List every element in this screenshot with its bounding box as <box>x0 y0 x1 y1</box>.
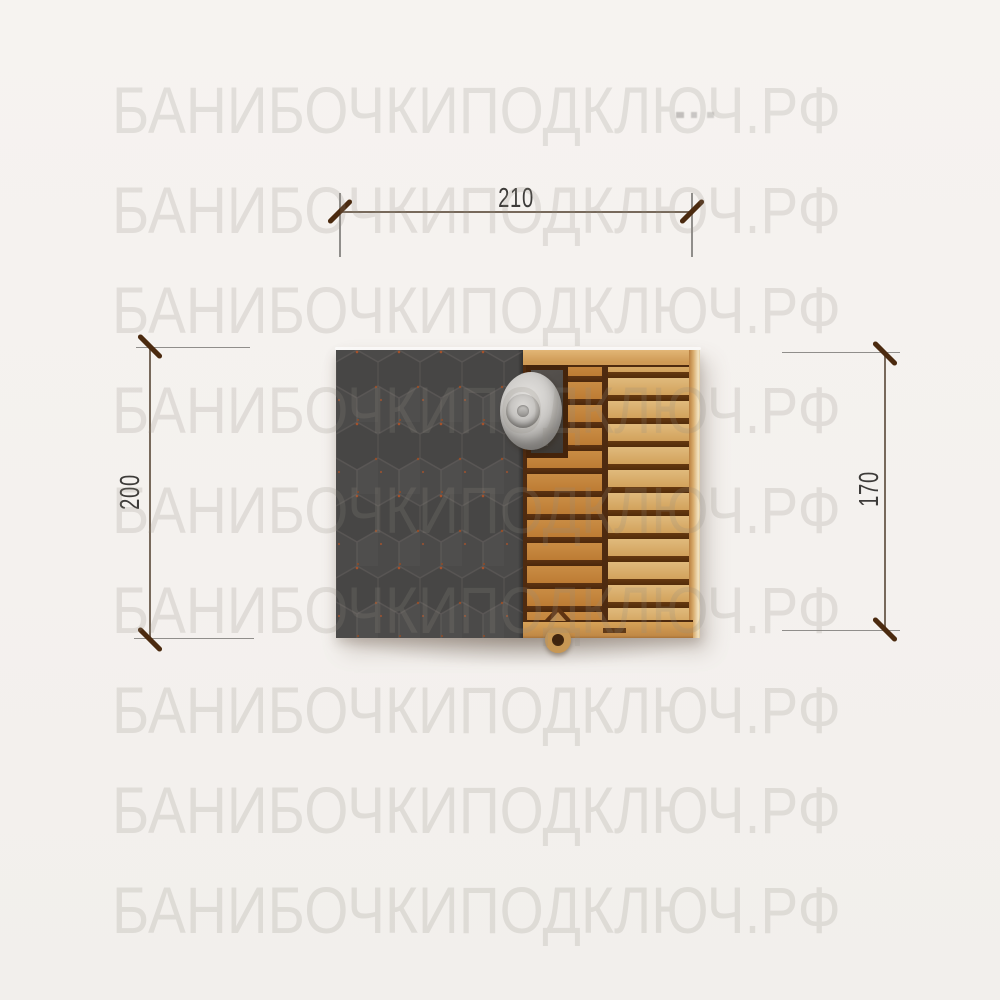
extension-line <box>691 193 693 257</box>
extension-line <box>339 193 341 257</box>
dimension-line <box>884 352 886 632</box>
sauna-building-topview <box>336 350 700 638</box>
frame-notch <box>603 628 626 633</box>
deck-frame-right <box>689 350 700 638</box>
deck-planks-outer <box>608 367 689 620</box>
watermark-row: БАНИБОЧКИПОДКЛЮЧ.РФ <box>112 870 841 950</box>
dimension-label-depth-left: 200 <box>115 466 145 518</box>
watermark-row: БАНИБОЧКИПОДКЛЮЧ.РФ <box>112 670 841 750</box>
shingle-roof <box>336 350 523 638</box>
watermark-row: БАНИБОЧКИПОДКЛЮЧ.РФ <box>112 270 841 350</box>
roof-vent-triangle-inner <box>550 612 566 621</box>
dimension-line <box>149 345 151 642</box>
chimney-pipe <box>506 394 540 428</box>
watermark-row: БАНИБОЧКИПОДКЛЮЧ.РФ <box>112 170 841 250</box>
faint-artifact <box>676 112 724 118</box>
dimension-label-depth-right: 170 <box>854 463 884 515</box>
door-ring-handle <box>545 627 571 653</box>
watermark-row: БАНИБОЧКИПОДКЛЮЧ.РФ <box>112 770 841 850</box>
hex-shingle-pattern <box>336 350 523 638</box>
watermark-row: БАНИБОЧКИПОДКЛЮЧ.РФ <box>112 70 841 150</box>
dimension-label-width: 210 <box>490 183 542 213</box>
sauna-plan-drawing: БАНИБОЧКИПОДКЛЮЧ.РФ БАНИБОЧКИПОДКЛЮЧ.РФ … <box>0 0 1000 1000</box>
